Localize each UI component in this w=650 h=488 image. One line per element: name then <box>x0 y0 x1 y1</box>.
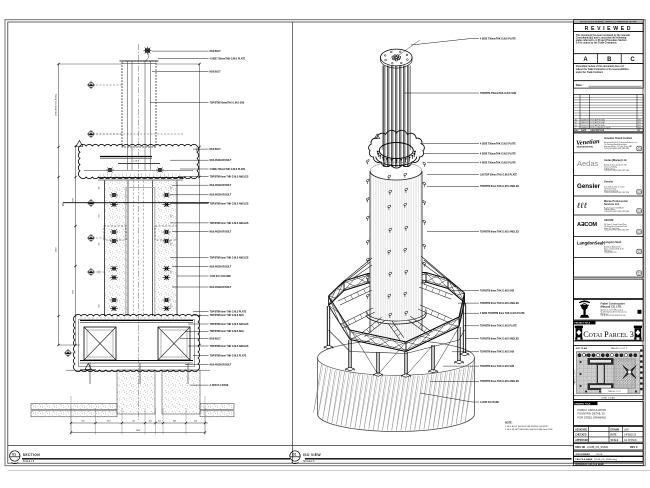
svg-text:T (853) 2878 1082 F (853) 287: T (853) 2878 1082 F (853) 2878 1083 <box>604 211 629 213</box>
svg-text:M16 BOLT: M16 BOLT <box>210 339 222 341</box>
svg-text:ISO VIEW: ISO VIEW <box>303 453 321 457</box>
svg-text:4 500 R.C COLUMN: 4 500 R.C COLUMN <box>210 275 231 278</box>
svg-text:LangdonSeah: LangdonSeah <box>577 241 605 246</box>
svg-text:Gensler: Gensler <box>604 181 613 184</box>
svg-text:TOP/BTM 6mm THK G.M.S SHS: TOP/BTM 6mm THK G.M.S SHS <box>480 352 515 354</box>
svg-text:A1: A1 <box>575 121 577 124</box>
svg-text:Aedas (Macau) Ltd.: Aedas (Macau) Ltd. <box>604 159 627 162</box>
svg-text:01: 01 <box>12 453 16 457</box>
svg-text:under the Trade Contract.: under the Trade Contract. <box>576 71 604 74</box>
svg-text:TOP/BTM 6mm THK G.M.S SHS: TOP/BTM 6mm THK G.M.S SHS <box>480 366 515 368</box>
svg-text:TOP/BTM 6mm THK G.M.S SHS: TOP/BTM 6mm THK G.M.S SHS <box>480 290 515 292</box>
svg-text:1786: 1786 <box>197 147 199 153</box>
svg-text:NOTE:: NOTE: <box>505 422 513 425</box>
svg-text:REV C: REV C <box>630 446 638 449</box>
svg-text:TOP/BTM 6mm THK G.M.S ANGLES: TOP/BTM 6mm THK G.M.S ANGLES <box>480 185 519 188</box>
svg-text:M16 BOLT: M16 BOLT <box>210 149 222 151</box>
svg-text:FOUNTAIN DETAIL 25: FOUNTAIN DETAIL 25 <box>578 412 606 416</box>
svg-text:TOP/BTM 6mm THK G.M.S ANGLES: TOP/BTM 6mm THK G.M.S ANGLES <box>210 256 249 259</box>
svg-text:M16 ANCHOR BOLT: M16 ANCHOR BOLT <box>210 194 232 197</box>
svg-text:T (853) 2833 1710: T (853) 2833 1710 <box>604 252 616 254</box>
svg-text:111UB_FD_SN300: 111UB_FD_SN300 <box>587 446 609 449</box>
svg-text:M16 ANCHOR BOLT: M16 ANCHOR BOLT <box>210 231 232 234</box>
svg-text:Gensler: Gensler <box>577 183 601 190</box>
svg-text:FOR STEEL DRAWING: FOR STEEL DRAWING <box>578 415 606 419</box>
svg-text:ℓℓℓ: ℓℓℓ <box>577 201 588 210</box>
svg-text:4 SIDE TOP/BTM 6mm THK G.M.S P: 4 SIDE TOP/BTM 6mm THK G.M.S PLATE <box>480 312 525 315</box>
svg-text:T (852) 3922 9000 F (852) 392: T (852) 3922 9000 F (852) 3922 9797 <box>604 230 629 232</box>
svg-text:PARCEL 2 LOT: PARCEL 2 LOT <box>608 390 621 393</box>
svg-text:A 2000 R.C BASE: A 2000 R.C BASE <box>480 401 499 404</box>
svg-text:PUBLIC CIRCULATION: PUBLIC CIRCULATION <box>578 408 607 412</box>
svg-text:4 SIDE 750mmTHK G.M.S PLATE: 4 SIDE 750mmTHK G.M.S PLATE <box>480 162 516 165</box>
svg-text:T (853) 2882 8888 F (853) 2: T (853) 2882 8888 F (853) 2882 8889 <box>604 148 629 150</box>
svg-text:14FEB2015: 14FEB2015 <box>624 435 637 437</box>
svg-text:B: B <box>607 57 612 63</box>
svg-text:DRAWN: DRAWN <box>611 428 620 431</box>
svg-text:CAD FILE NAME: CAD FILE NAME <box>575 458 593 461</box>
svg-text:T (853) 2871 5453 F (853) 287: T (853) 2871 5453 F (853) 2871 5463 <box>604 170 629 172</box>
svg-text:4 SIDE 750mmTHK G.M.S PLATE: 4 SIDE 750mmTHK G.M.S PLATE <box>480 152 516 155</box>
svg-text:C: C <box>630 57 635 63</box>
svg-text:JOB NUMBER: JOB NUMBER <box>575 454 590 456</box>
svg-text:KM: KM <box>638 122 641 124</box>
svg-text:5.4 for action by the Tra: 5.4 for action by the Trade Contractor. <box>576 42 618 45</box>
svg-text:30AUG13: 30AUG13 <box>581 121 589 124</box>
svg-text:A: A <box>583 57 588 63</box>
svg-text:Aedas: Aedas <box>577 159 599 168</box>
svg-text:PARCEL 1, LOT 1: PARCEL 1, LOT 1 <box>574 370 577 384</box>
svg-text:Wanchai, Hong Kong: Wanchai, Hong Kong <box>604 190 618 192</box>
svg-text:TOP/BTM 6mm THK G.M.S ANGLES: TOP/BTM 6mm THK G.M.S ANGLES <box>210 203 249 206</box>
svg-text:A0: A0 <box>575 119 577 122</box>
svg-text:M16 ANCHOR BOLT: M16 ANCHOR BOLT <box>210 159 232 162</box>
svg-text:TOP/BTM 6mm THK G.M.S ANGLES: TOP/BTM 6mm THK G.M.S ANGLES <box>210 323 249 326</box>
svg-text:DESIGNED: DESIGNED <box>575 429 587 431</box>
svg-text:FOR APPROVAL: FOR APPROVAL <box>591 119 605 122</box>
svg-text:APPROVED: APPROVED <box>575 439 588 442</box>
svg-text:TOP/BTM 50mmTHK G.M.S SHS: TOP/BTM 50mmTHK G.M.S SHS <box>210 103 245 105</box>
svg-text:TOP/BTM 6mm THK G.M.S PLATE: TOP/BTM 6mm THK G.M.S PLATE <box>210 355 247 358</box>
svg-text:4 SIDE 750mmTHK G.M.S PLATE: 4 SIDE 750mmTHK G.M.S PLATE <box>480 37 516 40</box>
svg-text:KEY PLAN: KEY PLAN <box>576 347 587 350</box>
svg-text:4 SIDE 750mmTHK G.M.S PLATE: 4 SIDE 750mmTHK G.M.S PLATE <box>210 57 246 60</box>
svg-text:Consultant review of this: Consultant review of this document does … <box>576 65 624 68</box>
svg-text:TOP/BTM 6mm THK G.M.S ANGLES: TOP/BTM 6mm THK G.M.S ANGLES <box>480 231 519 234</box>
svg-text:M16 ANCHOR BOLT: M16 ANCHOR BOLT <box>210 363 232 366</box>
svg-text:02: 02 <box>292 453 296 457</box>
svg-text:LWO: LWO <box>624 429 629 431</box>
svg-text:M16 ANCHOR BOLT: M16 ANCHOR BOLT <box>210 286 232 289</box>
svg-text:1. ALL BOLT SHOULD BE FIXING O: 1. ALL BOLT SHOULD BE FIXING ON SITE. <box>505 425 549 428</box>
svg-text:TOP/BTM 6mm THK G.M.S PLATE: TOP/BTM 6mm THK G.M.S PLATE <box>210 310 247 313</box>
svg-text:SECTION: SECTION <box>23 453 40 457</box>
svg-text:Langdon Seah: Langdon Seah <box>604 241 622 244</box>
svg-text:M16 ANCHOR BOLT: M16 ANCHOR BOLT <box>210 265 232 268</box>
svg-text:M16 BOLT: M16 BOLT <box>210 51 222 53</box>
svg-text:TOP/BTM 6mm THK G.M.S ANGLES: TOP/BTM 6mm THK G.M.S ANGLES <box>480 380 519 383</box>
svg-text:15/F, Macau: 15/F, Macau <box>604 250 612 252</box>
svg-text:LEVEL 1 PLAN: LEVEL 1 PLAN <box>602 397 615 400</box>
svg-text:1350: 1350 <box>56 247 58 253</box>
svg-text:TOP/BTM 6mm THK G.M.S ANGLES: TOP/BTM 6mm THK G.M.S ANGLES <box>210 175 249 178</box>
svg-text:DATE: DATE <box>611 434 618 437</box>
svg-text:AS SHOWN: AS SHOWN <box>624 439 637 442</box>
svg-text:111UB_FD_SN300.dwg: 111UB_FD_SN300.dwg <box>594 459 618 461</box>
svg-text:Services Ltd.: Services Ltd. <box>604 203 620 206</box>
svg-text:111UB: 111UB <box>596 454 603 456</box>
svg-text:DATE: DATE <box>581 129 587 132</box>
svg-text:REVIEWED: REVIEWED <box>585 26 633 32</box>
svg-text:SCALE 1:5: SCALE 1:5 <box>303 460 315 463</box>
svg-text:Date :: Date : <box>576 83 584 87</box>
svg-text:TOP/BTM 6mm THK G.M.S ANGLES: TOP/BTM 6mm THK G.M.S ANGLES <box>210 345 249 348</box>
svg-text:AƎCOM: AƎCOM <box>577 222 597 228</box>
svg-text:TOP/BTM 6mm THK G.M.S ANGLES: TOP/BTM 6mm THK G.M.S ANGLES <box>480 337 519 340</box>
svg-text:FOR APPROVAL: FOR APPROVAL <box>591 121 605 124</box>
svg-text:DRAWING TITLE: DRAWING TITLE <box>575 402 591 405</box>
svg-text:A 2000 R.C BASE: A 2000 R.C BASE <box>210 384 229 387</box>
svg-text:24MAY13: 24MAY13 <box>581 119 589 122</box>
svg-text:M16 ANCHOR BOLT: M16 ANCHOR BOLT <box>210 184 232 187</box>
svg-text:M16 BOLT: M16 BOLT <box>210 72 222 74</box>
svg-text:TOP/BTM 6mm THK G.M.S PLATE: TOP/BTM 6mm THK G.M.S PLATE <box>480 325 517 328</box>
svg-text:TOP/BTM 6mm THK G.M.S SHS: TOP/BTM 6mm THK G.M.S SHS <box>210 315 245 317</box>
svg-text:CHECKED: CHECKED <box>575 435 587 437</box>
svg-text:SCALE: SCALE <box>611 439 619 442</box>
svg-text:PARCEL 1, LOT 2: PARCEL 1, LOT 2 <box>611 347 628 350</box>
svg-text:4 SIDE 750mmTHK G.M.S PLATE: 4 SIDE 750mmTHK G.M.S PLATE <box>210 168 246 171</box>
svg-text:SCALE 1:5: SCALE 1:5 <box>23 460 35 463</box>
svg-text:1786 (FDN TO LEVEL): 1786 (FDN TO LEVEL) <box>56 94 58 117</box>
svg-text:China Law Building: China Law Building <box>604 166 617 168</box>
svg-text:FOR APPROVAL: FOR APPROVAL <box>591 124 605 127</box>
svg-text:TOP/BTM 6mm THK G.M.S ANGLES: TOP/BTM 6mm THK G.M.S ANGLES <box>210 222 249 225</box>
svg-text:AECOM: AECOM <box>604 219 613 222</box>
svg-text:TOP/BTM 750mmTHK G.M.S SHS: TOP/BTM 750mmTHK G.M.S SHS <box>480 93 517 95</box>
svg-text:DWG NO: DWG NO <box>575 446 585 449</box>
svg-text:(Macau) CO. LTD.: (Macau) CO. LTD. <box>601 305 623 309</box>
svg-text:T (852) 2503 8100 F (852) 250: T (852) 2503 8100 F (852) 2507 2205 <box>604 192 629 194</box>
svg-text:REV: REV <box>574 130 579 132</box>
svg-text:TOP/BTM 6mm THK G.M.S SHS: TOP/BTM 6mm THK G.M.S SHS <box>210 331 245 333</box>
svg-text:L-18-1: L-18-1 <box>133 161 140 163</box>
svg-text:REFERENCE CAD FILE NAME: REFERENCE CAD FILE NAME <box>575 463 604 466</box>
svg-text:L50/TOP 50mm THK G.M.S PLATE: L50/TOP 50mm THK G.M.S PLATE <box>480 173 517 176</box>
svg-text:TOP/BTM 6mm THK G.M.S ANGLES: TOP/BTM 6mm THK G.M.S ANGLES <box>480 302 519 305</box>
svg-text:T (853) 2875 1228 F (853) 287: T (853) 2875 1228 F (853) 2875 1229 <box>601 315 626 317</box>
svg-text:4 SIDE 750mmTHK G.M.S PLATE: 4 SIDE 750mmTHK G.M.S PLATE <box>480 142 516 145</box>
svg-text:PROJECT TITLE: PROJECT TITLE <box>575 323 591 325</box>
svg-text:relieve the Trade Contractor: relieve the Trade Contractor of its resp… <box>576 68 630 71</box>
svg-text:2. ALL FILLET WELDED SHOULD BE: 2. ALL FILLET WELDED SHOULD BE 6mm THK. <box>505 428 553 431</box>
svg-text:DESCRIPTION: DESCRIPTION <box>591 130 605 132</box>
svg-text:Venetian Orient Limited: Venetian Orient Limited <box>604 137 632 140</box>
